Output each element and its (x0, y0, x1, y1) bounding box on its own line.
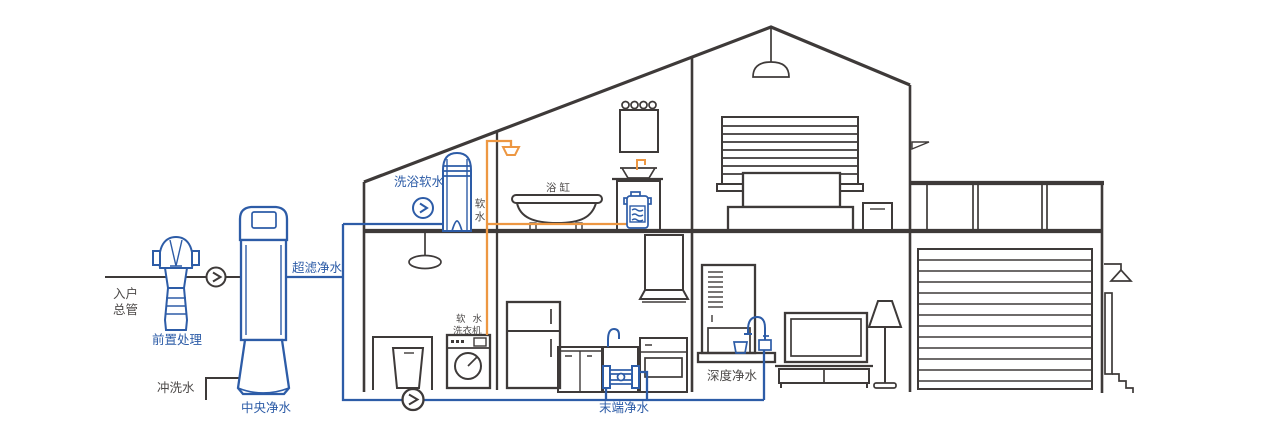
water-bar-fittings (734, 317, 771, 353)
washer-buttons (451, 340, 464, 343)
shower-head-icon (503, 147, 519, 155)
label-bath-softening: 洗浴软水 (394, 174, 445, 189)
mirror-lights (622, 102, 656, 109)
bed-headboard (743, 173, 840, 207)
flow-arrow-inlet (207, 268, 226, 287)
tv (785, 313, 867, 362)
whole-house-water-system-diagram: 入户 总管 前置处理 中央净水 冲洗水 超滤净水 洗浴软水 软 水 浴缸 软 水… (0, 0, 1280, 434)
label-bathtub: 浴缸 (546, 181, 573, 194)
label-soft-water-2: 水 (475, 211, 486, 223)
laundry-basket (393, 348, 423, 388)
wall-lamp-icon (1111, 270, 1131, 281)
label-entry-main-2: 总管 (113, 302, 138, 317)
diagram-svg: 入户 总管 前置处理 中央净水 冲洗水 超滤净水 洗浴软水 软 水 浴缸 软 水… (0, 0, 1280, 434)
kitchen (507, 235, 688, 392)
flow-arrow-softener (413, 198, 433, 218)
flush-water-pipe (206, 378, 240, 400)
garage-door (918, 249, 1092, 389)
laundry-room (373, 233, 490, 390)
flow-arrow-bottom (403, 389, 424, 410)
nightstand (863, 203, 892, 230)
garage (911, 183, 1133, 393)
label-central-purification: 中央净水 (241, 400, 292, 415)
fridge (507, 302, 560, 388)
bath-softener-device (443, 153, 471, 231)
blind-slats (722, 126, 858, 174)
bed (728, 207, 853, 230)
water-bar-vents (708, 272, 723, 322)
awning-wedge (912, 142, 929, 149)
label-soft-water-1: 软 (475, 197, 486, 210)
parapet-posts (927, 185, 1047, 229)
range-hood-duct (645, 235, 683, 290)
kitchen-faucet-icon (608, 329, 619, 347)
water-bar-cabinet (702, 265, 755, 353)
oven-panel (640, 345, 687, 352)
bathtub-rim (512, 195, 602, 203)
mirror (620, 110, 658, 152)
terminal-ro-device (603, 366, 639, 388)
pendant-light-icon (753, 62, 789, 77)
steps (1112, 374, 1133, 393)
downspout (1105, 293, 1112, 374)
label-entry-main-1: 入户 (113, 286, 138, 301)
bathtub-bowl (517, 203, 596, 223)
floor-lamp-shade (869, 301, 901, 327)
floor-lamp-base (874, 383, 896, 388)
pre-filter-device (153, 237, 199, 330)
garage-door-slats (918, 260, 1092, 381)
under-sink-heater-device (624, 192, 651, 228)
bedroom (717, 28, 892, 230)
oven-window (645, 358, 682, 377)
counter-doors (558, 351, 602, 392)
water-bar-recess (708, 328, 750, 353)
label-terminal-purification: 末端净水 (599, 400, 650, 415)
laundry-pendant-icon (409, 256, 441, 269)
label-deep-purification: 深度净水 (707, 368, 758, 383)
label-washer-1: 软 水 (456, 313, 484, 325)
central-purifier-device (238, 207, 289, 394)
range-hood-canopy (640, 290, 688, 299)
label-washer-2: 洗衣机 (453, 325, 482, 337)
label-ultrafiltration: 超滤净水 (292, 260, 343, 275)
wall-lamp-bracket (1104, 264, 1121, 271)
label-flush-water: 冲洗水 (157, 380, 195, 395)
tv-screen (791, 319, 861, 356)
label-pre-treatment: 前置处理 (152, 332, 203, 347)
vanity-sink (620, 168, 657, 178)
